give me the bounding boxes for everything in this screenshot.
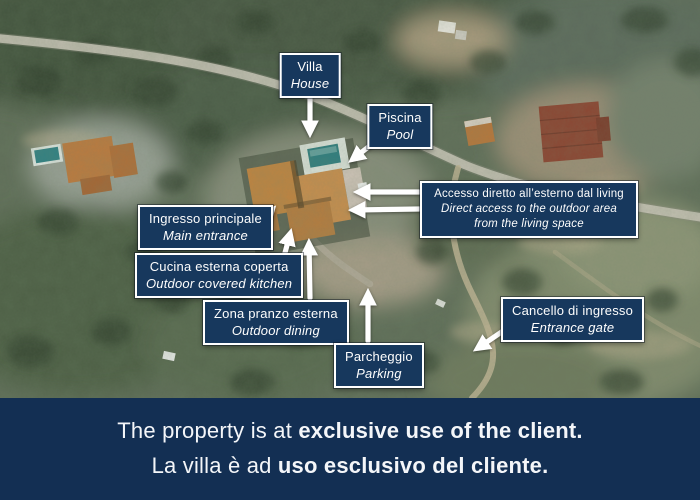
banner-line2-regular: La villa è ad [152, 453, 278, 478]
banner-line1-regular: The property is at [117, 418, 298, 443]
banner-line2-bold: uso esclusivo del cliente. [278, 453, 549, 478]
living-access-arrow-lower [354, 209, 419, 210]
property-annotation-screenshot: Villa House Piscina Pool Accesso diretto… [0, 0, 700, 500]
satellite-map [0, 0, 700, 398]
satellite-map-canvas [0, 0, 700, 398]
exclusive-use-banner: The property is at exclusive use of the … [0, 398, 700, 500]
banner-line-english: The property is at exclusive use of the … [117, 416, 582, 447]
outdoor-dining-arrow [309, 244, 310, 298]
banner-line-italian: La villa è ad uso esclusivo del cliente. [152, 451, 549, 482]
banner-line1-bold: exclusive use of the client. [298, 418, 582, 443]
